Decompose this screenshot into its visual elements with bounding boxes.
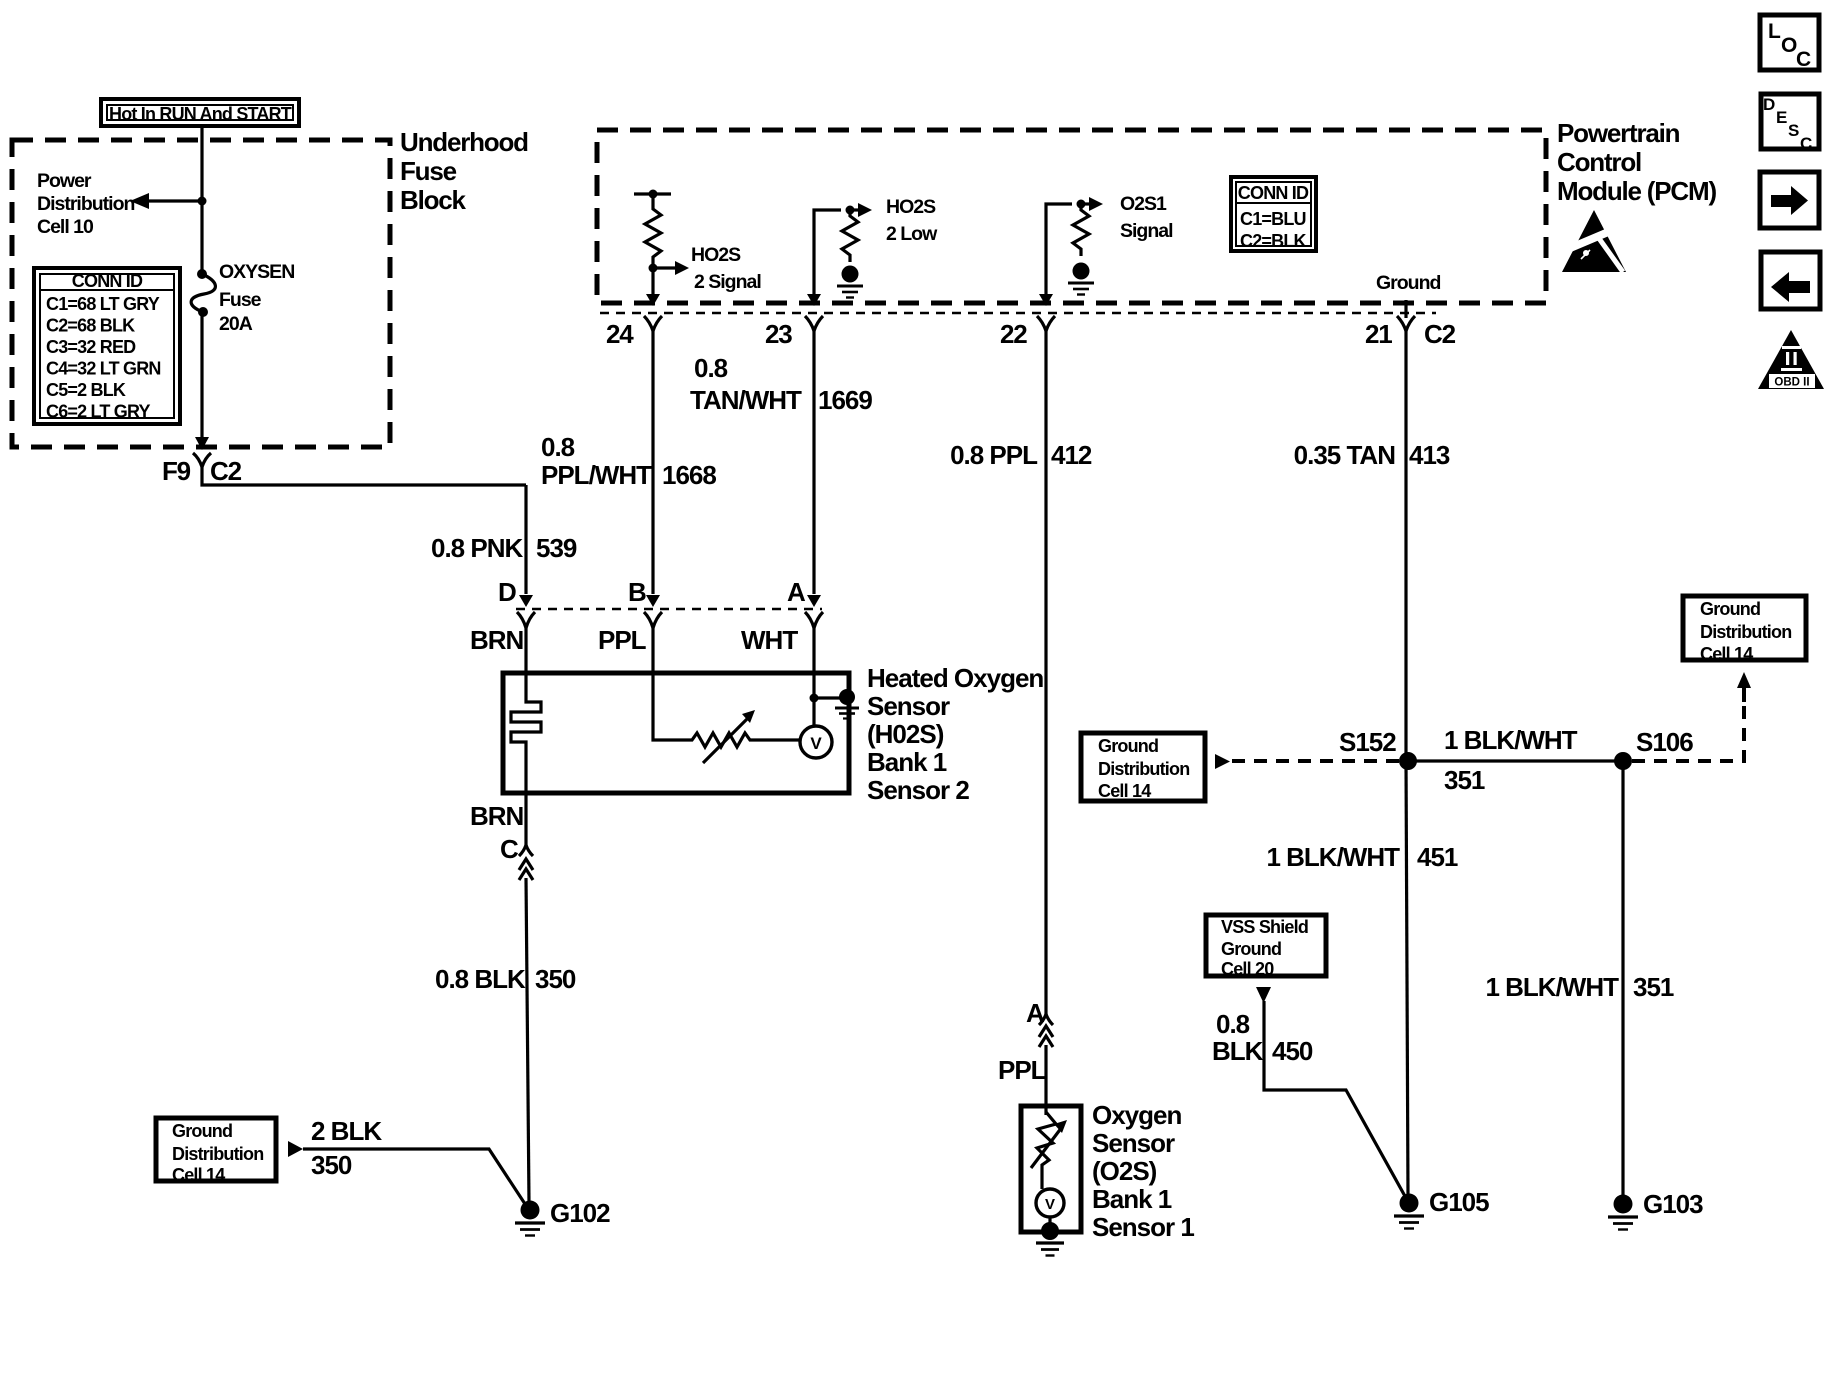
svg-text:Ground: Ground bbox=[1376, 272, 1440, 294]
svg-text:Ground: Ground bbox=[1098, 736, 1158, 756]
svg-text:Cell 14: Cell 14 bbox=[172, 1165, 225, 1185]
svg-text:G103: G103 bbox=[1643, 1189, 1703, 1219]
svg-text:Underhood: Underhood bbox=[400, 127, 528, 157]
svg-text:(H02S): (H02S) bbox=[867, 719, 944, 749]
svg-text:Sensor: Sensor bbox=[867, 691, 950, 721]
svg-text:1 BLK/WHT: 1 BLK/WHT bbox=[1444, 725, 1578, 755]
svg-text:D: D bbox=[1763, 95, 1775, 114]
svg-text:450: 450 bbox=[1272, 1036, 1313, 1066]
svg-text:Fuse: Fuse bbox=[400, 156, 457, 186]
svg-text:HO2S: HO2S bbox=[691, 244, 741, 266]
svg-text:Oxygen: Oxygen bbox=[1092, 1100, 1181, 1130]
svg-text:WHT: WHT bbox=[741, 625, 798, 655]
svg-text:C: C bbox=[1796, 48, 1811, 71]
svg-text:Cell 20: Cell 20 bbox=[1221, 959, 1274, 979]
svg-text:C1=BLU: C1=BLU bbox=[1240, 209, 1306, 229]
svg-text:C2: C2 bbox=[1424, 319, 1456, 349]
svg-text:2 Signal: 2 Signal bbox=[694, 271, 761, 293]
svg-text:Ground: Ground bbox=[172, 1121, 232, 1141]
svg-text:21: 21 bbox=[1365, 319, 1392, 349]
svg-text:Ground: Ground bbox=[1221, 939, 1281, 959]
svg-text:PPL: PPL bbox=[598, 625, 647, 655]
svg-text:S: S bbox=[1788, 121, 1799, 140]
svg-text:OXYSEN: OXYSEN bbox=[219, 261, 294, 283]
svg-text:1668: 1668 bbox=[662, 460, 716, 490]
svg-text:B: B bbox=[628, 577, 646, 607]
svg-text:Cell 14: Cell 14 bbox=[1700, 644, 1753, 664]
svg-text:Distribution: Distribution bbox=[1098, 759, 1189, 779]
svg-text:0.8 PPL: 0.8 PPL bbox=[950, 440, 1038, 470]
svg-text:G105: G105 bbox=[1429, 1187, 1489, 1217]
svg-text:C: C bbox=[1800, 134, 1812, 153]
svg-text:Bank 1: Bank 1 bbox=[867, 747, 947, 777]
svg-text:V: V bbox=[1045, 1196, 1055, 1213]
svg-text:VSS Shield: VSS Shield bbox=[1221, 917, 1308, 937]
svg-text:C1=68 LT GRY: C1=68 LT GRY bbox=[46, 294, 160, 314]
svg-text:24: 24 bbox=[606, 319, 634, 349]
svg-text:BRN: BRN bbox=[470, 801, 524, 831]
svg-text:1 BLK/WHT: 1 BLK/WHT bbox=[1485, 972, 1619, 1002]
svg-text:451: 451 bbox=[1417, 842, 1458, 872]
svg-text:Distribution: Distribution bbox=[1700, 622, 1791, 642]
svg-text:Ground: Ground bbox=[1700, 599, 1760, 619]
svg-text:Module (PCM): Module (PCM) bbox=[1557, 176, 1716, 206]
svg-text:Bank 1: Bank 1 bbox=[1092, 1184, 1172, 1214]
svg-text:412: 412 bbox=[1051, 440, 1092, 470]
svg-text:2 Low: 2 Low bbox=[886, 223, 938, 245]
svg-text:0.35 TAN: 0.35 TAN bbox=[1294, 440, 1396, 470]
svg-text:OBD II: OBD II bbox=[1774, 377, 1809, 389]
svg-text:350: 350 bbox=[535, 964, 576, 994]
svg-text:G102: G102 bbox=[550, 1198, 610, 1228]
svg-text:L: L bbox=[1768, 20, 1781, 43]
svg-text:20A: 20A bbox=[219, 313, 253, 335]
svg-text:CONN ID: CONN ID bbox=[72, 271, 143, 291]
svg-text:Heated Oxygen: Heated Oxygen bbox=[867, 663, 1043, 693]
svg-text:351: 351 bbox=[1444, 765, 1485, 795]
svg-text:O2S1: O2S1 bbox=[1120, 193, 1167, 215]
svg-text:D: D bbox=[498, 577, 516, 607]
svg-text:E: E bbox=[1776, 108, 1787, 127]
svg-text:Signal: Signal bbox=[1120, 220, 1173, 242]
svg-text:Power: Power bbox=[37, 170, 92, 192]
svg-text:C4=32 LT GRN: C4=32 LT GRN bbox=[46, 359, 161, 379]
svg-text:Sensor 2: Sensor 2 bbox=[867, 775, 969, 805]
svg-text:HO2S: HO2S bbox=[886, 196, 936, 218]
svg-text:C6=2 LT GRY: C6=2 LT GRY bbox=[46, 402, 151, 422]
svg-text:Hot In RUN And START: Hot In RUN And START bbox=[109, 104, 292, 124]
svg-text:0.8: 0.8 bbox=[541, 432, 575, 462]
svg-text:V: V bbox=[810, 734, 822, 753]
svg-text:C2=68 BLK: C2=68 BLK bbox=[46, 316, 135, 336]
svg-text:539: 539 bbox=[536, 533, 577, 563]
svg-text:(O2S): (O2S) bbox=[1092, 1156, 1157, 1186]
svg-text:22: 22 bbox=[1000, 319, 1027, 349]
svg-text:Sensor: Sensor bbox=[1092, 1128, 1175, 1158]
svg-text:Fuse: Fuse bbox=[219, 289, 262, 311]
svg-text:O: O bbox=[1781, 34, 1797, 57]
svg-text:Cell 14: Cell 14 bbox=[1098, 781, 1151, 801]
svg-text:0.8: 0.8 bbox=[1216, 1009, 1250, 1039]
svg-text:351: 351 bbox=[1633, 972, 1674, 1002]
svg-text:23: 23 bbox=[765, 319, 792, 349]
svg-text:C: C bbox=[500, 834, 519, 864]
svg-text:F9: F9 bbox=[162, 456, 191, 486]
svg-text:Sensor 1: Sensor 1 bbox=[1092, 1212, 1194, 1242]
svg-text:C2=BLK: C2=BLK bbox=[1240, 231, 1307, 251]
svg-text:PPL: PPL bbox=[998, 1055, 1047, 1085]
svg-text:CONN ID: CONN ID bbox=[1238, 183, 1309, 203]
svg-text:A: A bbox=[787, 577, 806, 607]
svg-text:Powertrain: Powertrain bbox=[1557, 118, 1680, 148]
svg-text:1669: 1669 bbox=[818, 385, 872, 415]
svg-text:0.8: 0.8 bbox=[694, 353, 728, 383]
svg-text:S152: S152 bbox=[1339, 727, 1396, 757]
svg-text:BRN: BRN bbox=[470, 625, 524, 655]
svg-text:S106: S106 bbox=[1636, 727, 1693, 757]
svg-text:2 BLK: 2 BLK bbox=[311, 1116, 382, 1146]
svg-text:TAN/WHT: TAN/WHT bbox=[690, 385, 802, 415]
svg-text:C5=2 BLK: C5=2 BLK bbox=[46, 380, 126, 400]
svg-text:C3=32 RED: C3=32 RED bbox=[46, 337, 136, 357]
svg-text:1 BLK/WHT: 1 BLK/WHT bbox=[1266, 842, 1400, 872]
svg-text:Cell 10: Cell 10 bbox=[37, 216, 94, 238]
svg-text:350: 350 bbox=[311, 1150, 352, 1180]
svg-text:C2: C2 bbox=[210, 456, 242, 486]
svg-text:Distribution: Distribution bbox=[172, 1144, 263, 1164]
svg-text:Control: Control bbox=[1557, 147, 1641, 177]
svg-text:0.8 BLK: 0.8 BLK bbox=[435, 964, 526, 994]
svg-text:Block: Block bbox=[400, 185, 467, 215]
svg-text:0.8 PNK: 0.8 PNK bbox=[431, 533, 523, 563]
svg-text:BLK: BLK bbox=[1212, 1036, 1264, 1066]
svg-text:413: 413 bbox=[1409, 440, 1450, 470]
svg-text:PPL/WHT: PPL/WHT bbox=[541, 460, 652, 490]
svg-text:Distribution: Distribution bbox=[37, 193, 134, 215]
